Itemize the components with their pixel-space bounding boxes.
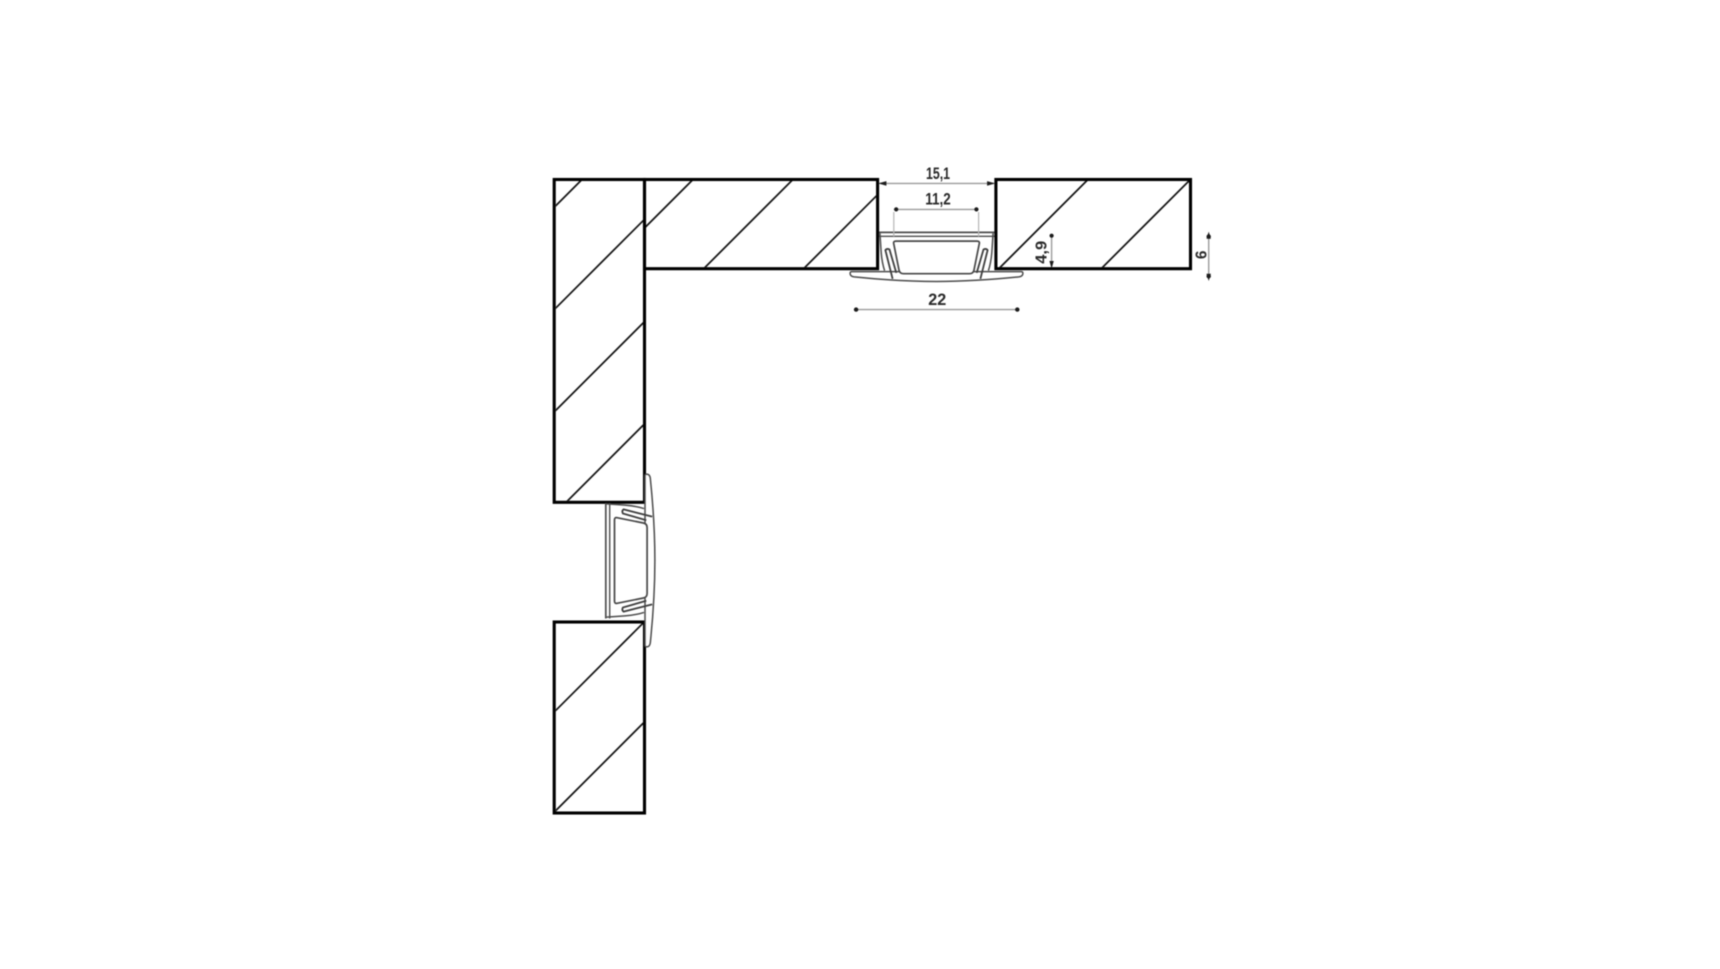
svg-text:11,2: 11,2 xyxy=(925,191,951,209)
svg-text:22: 22 xyxy=(928,291,946,309)
svg-text:6: 6 xyxy=(1194,250,1211,259)
svg-text:15,1: 15,1 xyxy=(926,165,950,183)
svg-text:4,9: 4,9 xyxy=(1034,240,1051,263)
